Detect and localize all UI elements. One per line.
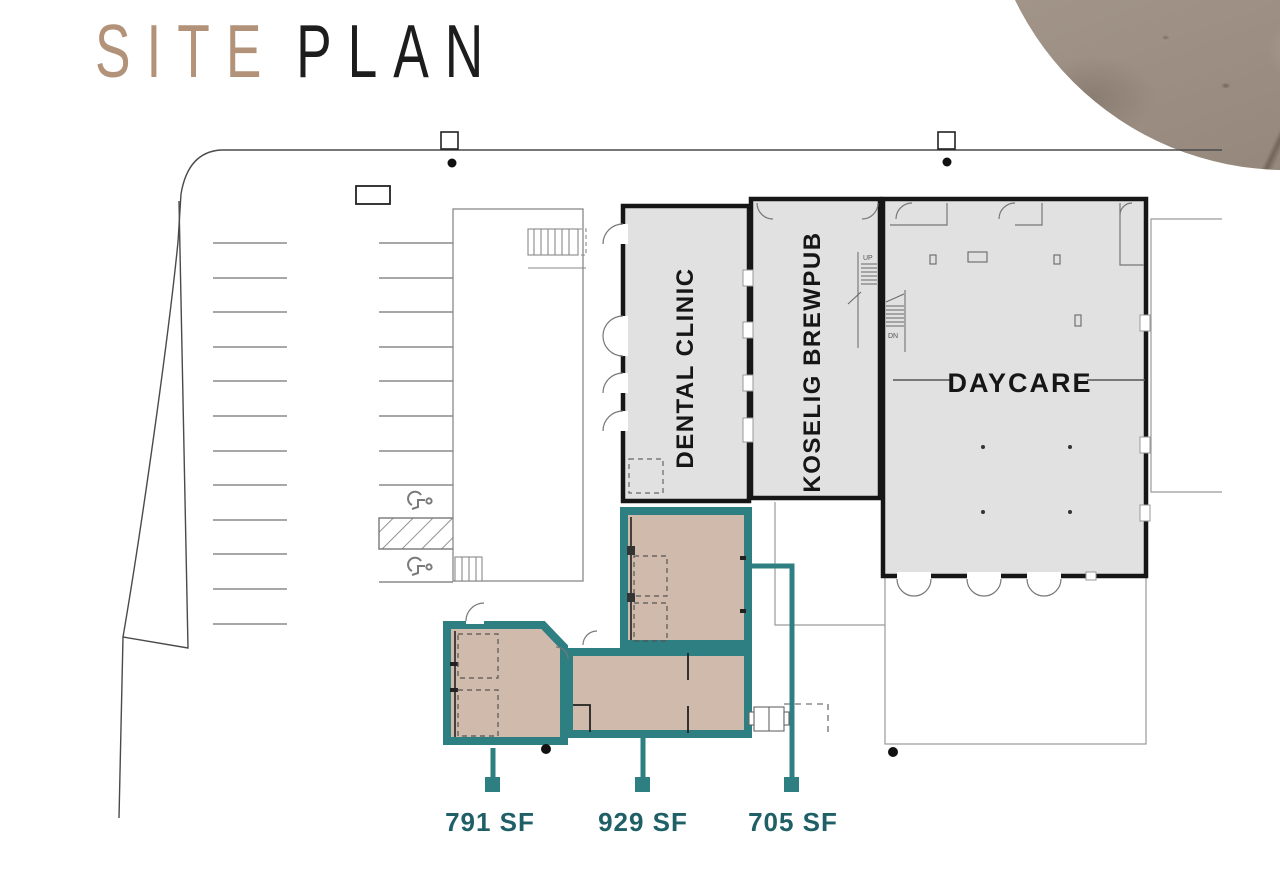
wheelchair-icon: [408, 558, 432, 575]
unit-705-area-label: 705 SF: [748, 807, 838, 837]
stair-dn-label: DN: [888, 333, 898, 340]
unit-791: [447, 625, 564, 741]
unit-929-area-label: 929 SF: [598, 807, 688, 837]
light-pole: [938, 132, 955, 167]
utility-pad: [749, 704, 828, 734]
unit-705: [624, 511, 748, 644]
sign-marker: [356, 186, 390, 204]
unit-929: [569, 652, 748, 734]
parking-stalls-left: [213, 243, 287, 624]
brewpub-label: KOSELIG BREWPUB: [799, 231, 826, 492]
site-dot: [888, 747, 898, 757]
light-pole: [441, 132, 458, 168]
site-plan-page: SITEPLAN: [0, 0, 1280, 887]
site-plan-drawing: UP DN: [0, 0, 1280, 887]
dental-clinic-label: DENTAL CLINIC: [672, 267, 699, 468]
accessible-aisle-hatch: [379, 518, 454, 549]
unit-leader-markers: [485, 777, 799, 792]
stair-bottom: [455, 557, 482, 581]
site-dot: [541, 744, 551, 754]
wheelchair-icon: [408, 492, 432, 509]
unit-791-area-label: 791 SF: [445, 807, 535, 837]
daycare-label: DAYCARE: [947, 368, 1092, 398]
existing-building: [453, 209, 586, 581]
stair-up-label: UP: [863, 255, 873, 262]
